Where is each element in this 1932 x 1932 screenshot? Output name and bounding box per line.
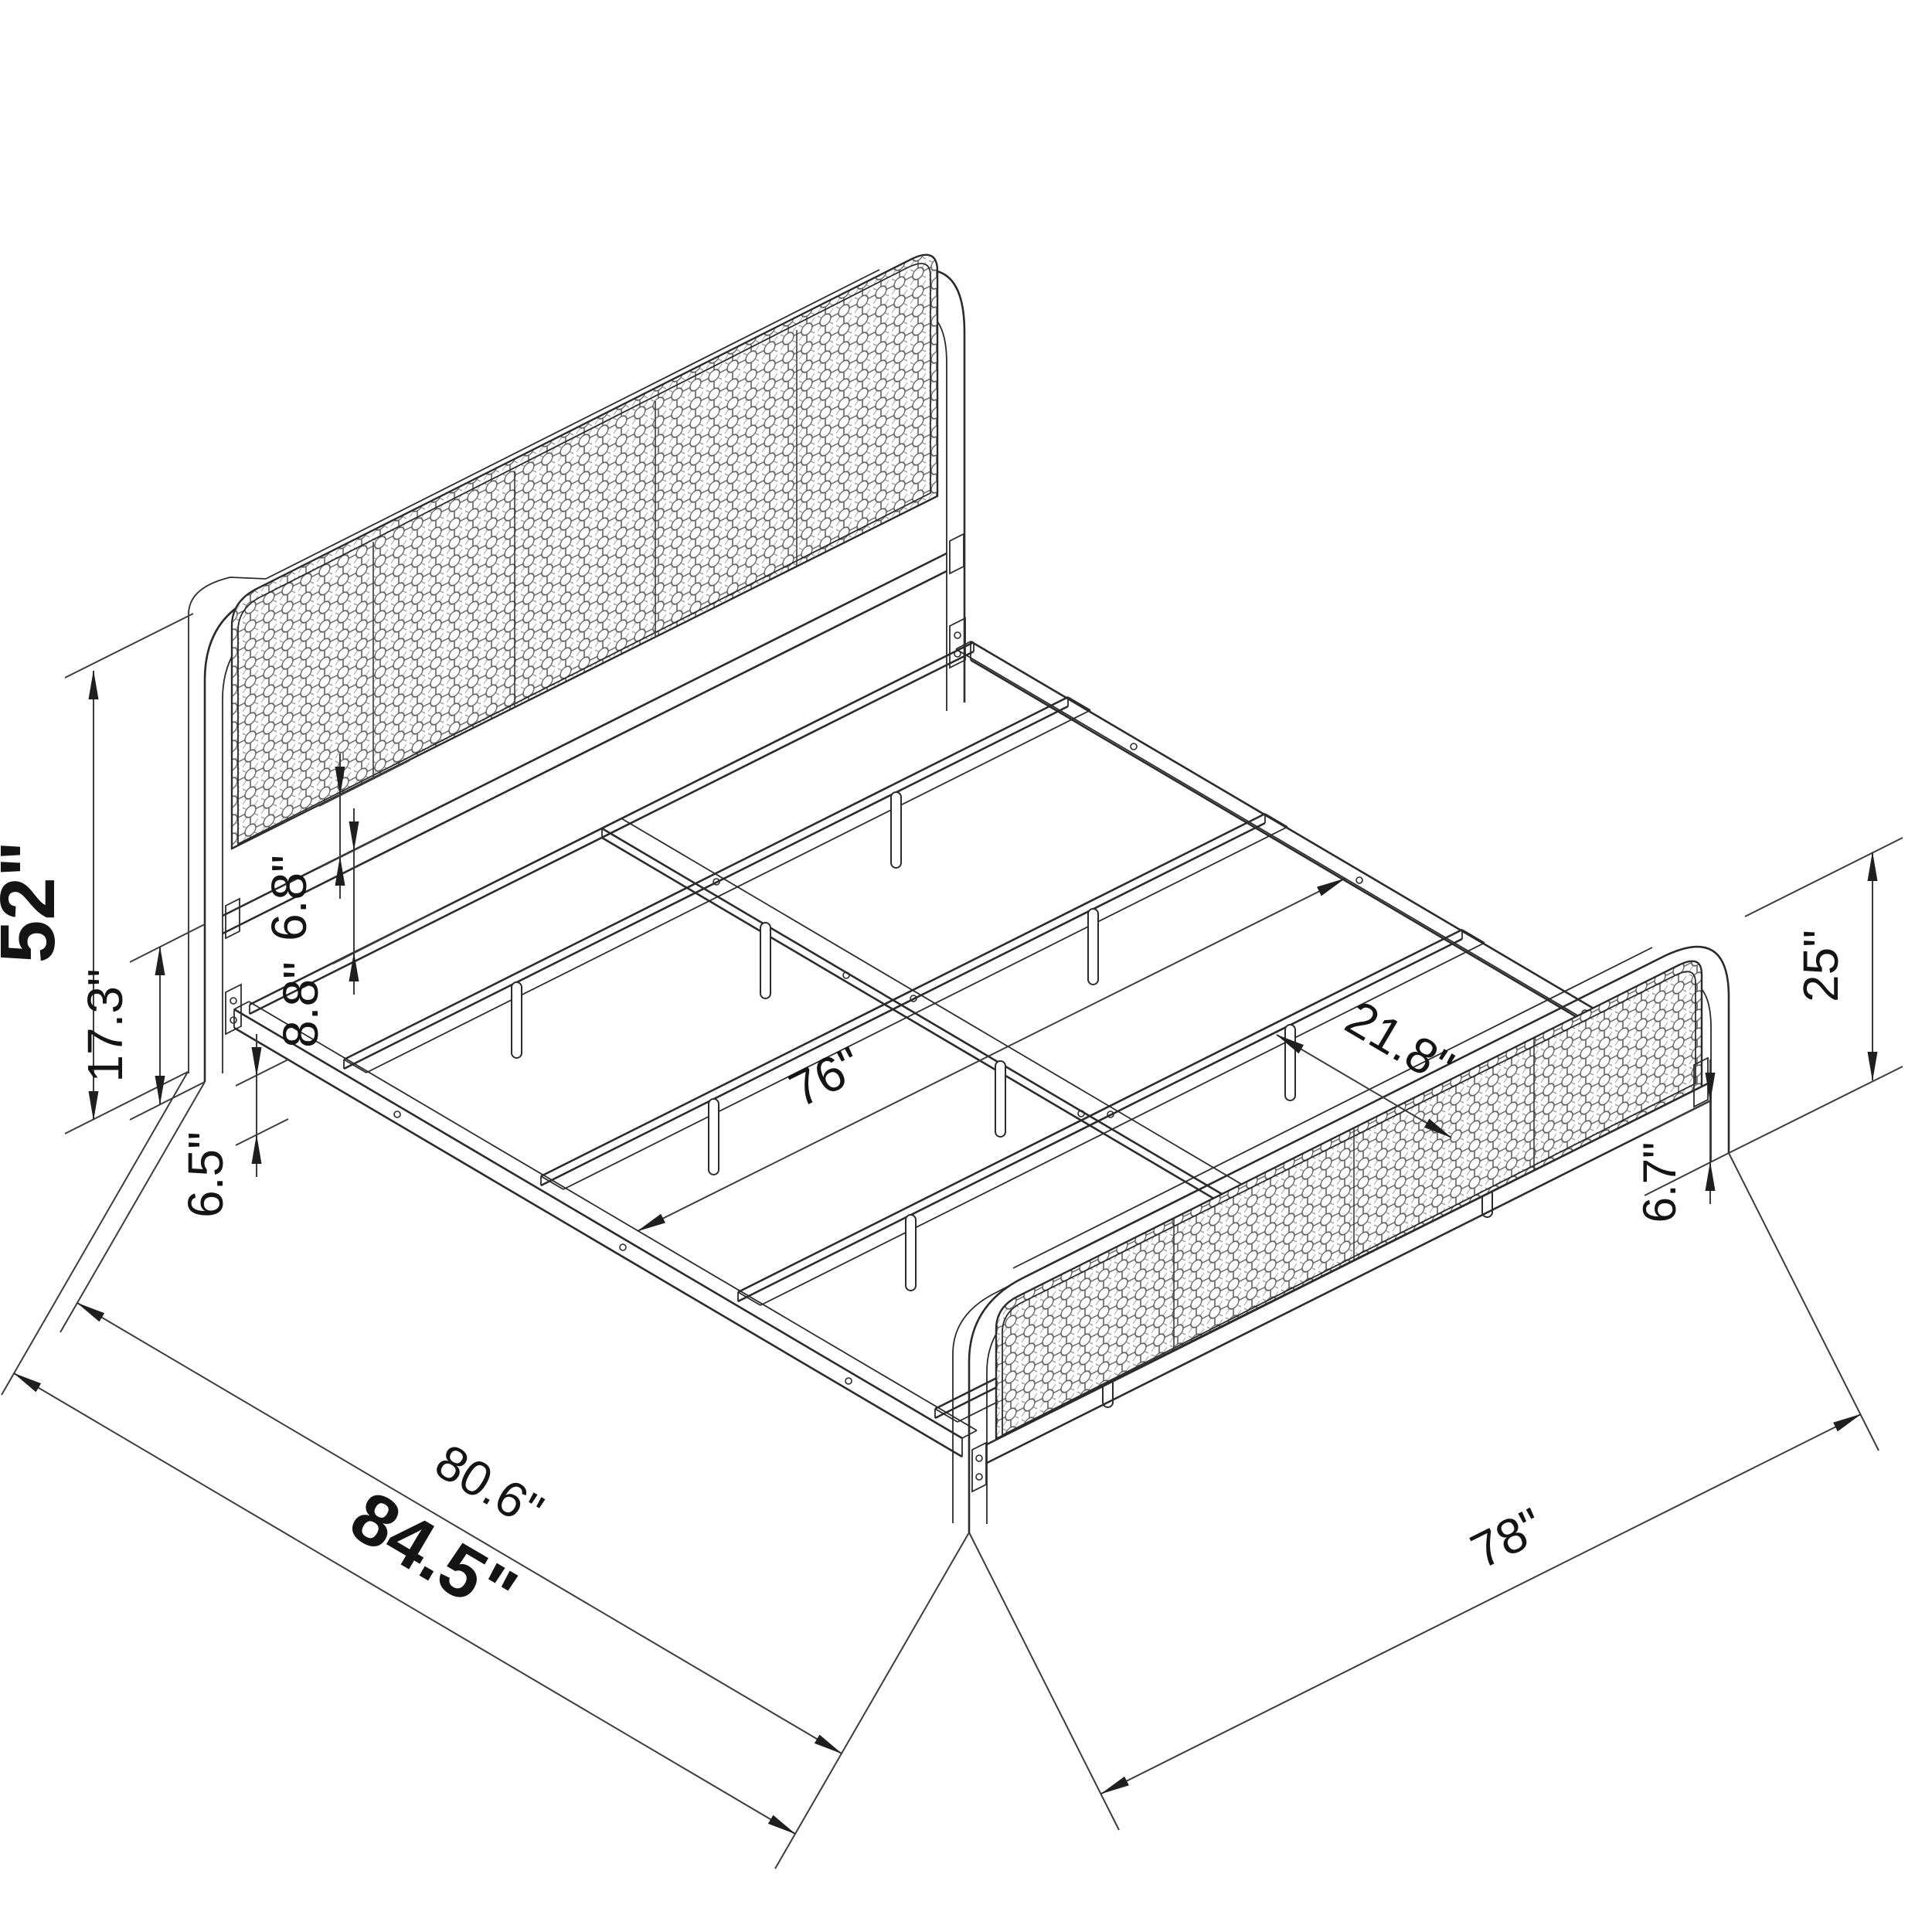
footboard-height-label: 25" — [1793, 930, 1849, 1002]
slat-leg — [512, 982, 522, 1058]
bed-frame-dimension-diagram: 52" 17.3" 6.8" 8.8" 6.5" 76" — [0, 0, 1932, 1932]
headboard-height-label: 52" — [0, 841, 71, 964]
footboard-clearance-label: 6.7" — [1634, 1142, 1685, 1223]
center-rail-leg — [760, 923, 770, 998]
crossbar-to-rail-label: 8.8" — [273, 961, 328, 1048]
center-rail-leg — [995, 1061, 1005, 1137]
slat-leg — [709, 1099, 719, 1175]
side-rail-clearance-label: 6.5" — [178, 1131, 233, 1218]
slat-leg — [891, 792, 901, 868]
slat-leg — [1285, 1025, 1295, 1100]
headboard-panel-gap-label: 6.8" — [261, 855, 317, 941]
slat-leg — [1088, 909, 1098, 985]
slat-leg — [906, 1215, 916, 1291]
technical-drawing-canvas: 52" 17.3" 6.8" 8.8" 6.5" 76" — [0, 0, 1932, 1932]
headboard-base-height-label: 17.3" — [77, 968, 133, 1082]
